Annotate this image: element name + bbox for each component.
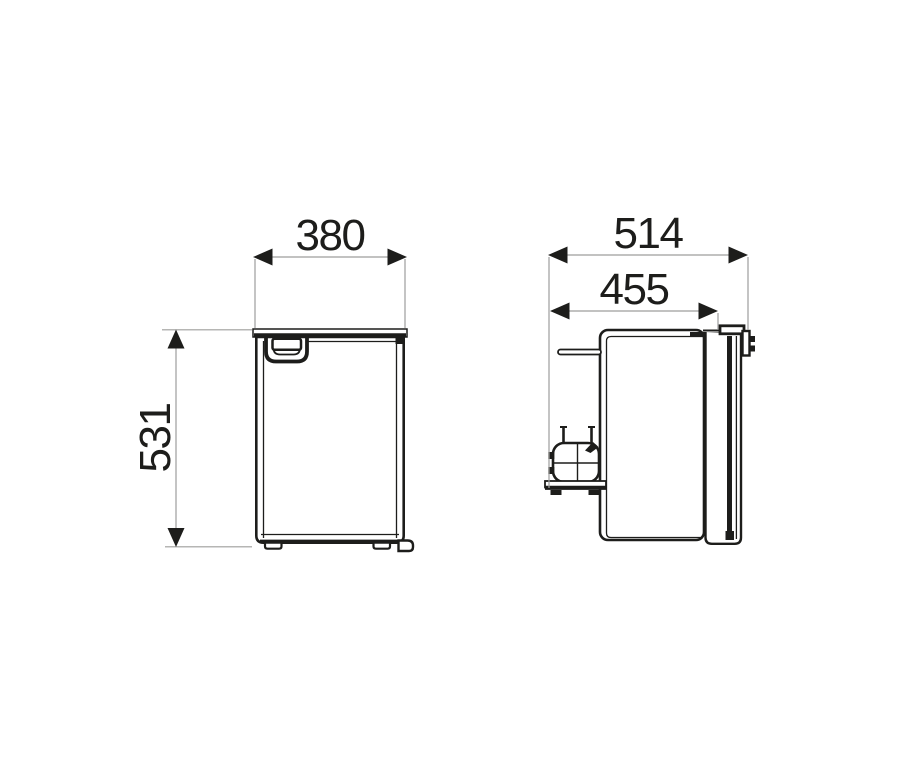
- arrow-right-icon: [729, 247, 749, 264]
- arrow-right-icon: [388, 249, 408, 266]
- dimension-label-body-depth: 455: [600, 265, 669, 314]
- front-hinge-notch: [396, 338, 404, 345]
- arrow-up-icon: [168, 330, 185, 349]
- compressor-base: [545, 481, 606, 495]
- dimension-label-total-depth: 514: [614, 209, 684, 258]
- arrow-left-icon: [548, 247, 568, 264]
- dimension-front-height: 531: [131, 330, 252, 548]
- arrow-right-icon: [699, 303, 719, 320]
- arrow-left-icon: [550, 303, 570, 320]
- dimension-body-depth: 455: [550, 265, 718, 329]
- coolant-pipe: [558, 350, 601, 355]
- front-door: [256, 337, 403, 543]
- arrow-down-icon: [168, 528, 185, 547]
- technical-drawing: 380 531 514 455: [0, 0, 900, 765]
- dimension-label-front-height: 531: [131, 404, 180, 473]
- compressor: [545, 427, 606, 495]
- side-cabinet: [600, 330, 720, 540]
- side-door: [706, 326, 745, 544]
- dimension-label-front-width: 380: [296, 211, 365, 260]
- arrow-left-icon: [253, 249, 273, 266]
- front-view: [253, 329, 413, 551]
- side-view: [545, 326, 755, 544]
- dimension-front-width: 380: [253, 211, 407, 328]
- hinge-bracket: [743, 331, 756, 356]
